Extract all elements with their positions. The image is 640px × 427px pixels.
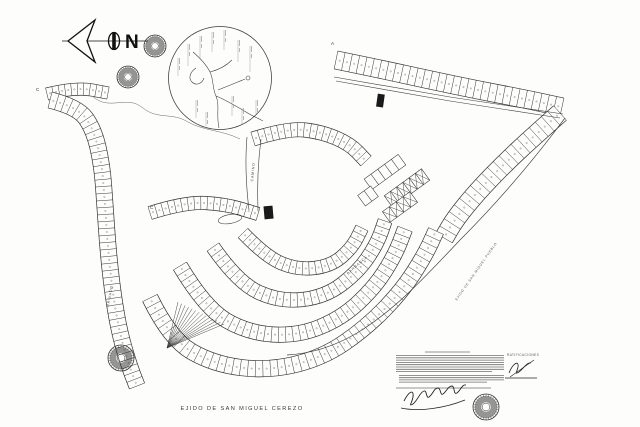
scanned-ejido-plan: N RATIFICACIONES PRIVADO CAMINO BARRANCA… [0, 0, 640, 427]
inset-road [210, 60, 232, 72]
ratification-stroke [510, 360, 534, 377]
map-title: EJIDO DE SAN MIGUEL CEREZO [181, 406, 304, 412]
road-label-camino: CAMINO [250, 162, 256, 181]
lot-strip [48, 92, 145, 389]
inset-circle [169, 27, 272, 130]
official-seal-stamp [117, 66, 139, 88]
boundary-label-neighbor-ejido: EJIDO DE SAN MIGUEL PUEBLO [454, 242, 498, 302]
official-seal-stamp [144, 35, 166, 57]
lot-strips [46, 51, 567, 389]
section-marker-c: C [36, 87, 40, 92]
ejido-plan-map: N RATIFICACIONES PRIVADO CAMINO BARRANCA… [0, 0, 640, 427]
section-marker-a: A [331, 41, 335, 46]
field-oval [217, 212, 242, 225]
village-blocks [358, 154, 430, 222]
lot-strip [238, 225, 368, 275]
lot-strip [148, 196, 260, 220]
road-camino-left [246, 137, 249, 210]
inset-road [190, 68, 204, 84]
road-camino-right [258, 139, 261, 211]
official-seal-stamp [473, 394, 499, 420]
north-label: N [125, 32, 139, 53]
location-inset-map [169, 27, 272, 130]
notes-heading: RATIFICACIONES [507, 353, 539, 357]
notes-block [396, 352, 504, 388]
village-block [364, 154, 406, 189]
lot-strip [251, 123, 371, 166]
compass-bar [112, 32, 116, 50]
north-arrow-icon: N [62, 20, 148, 62]
lot-strip [334, 51, 564, 116]
inset-node [246, 76, 250, 80]
inset-road [218, 79, 245, 90]
village-block [358, 186, 379, 206]
building-block [376, 94, 385, 108]
signatures [401, 360, 537, 410]
building-block [263, 206, 273, 220]
lot-strip [436, 106, 567, 243]
